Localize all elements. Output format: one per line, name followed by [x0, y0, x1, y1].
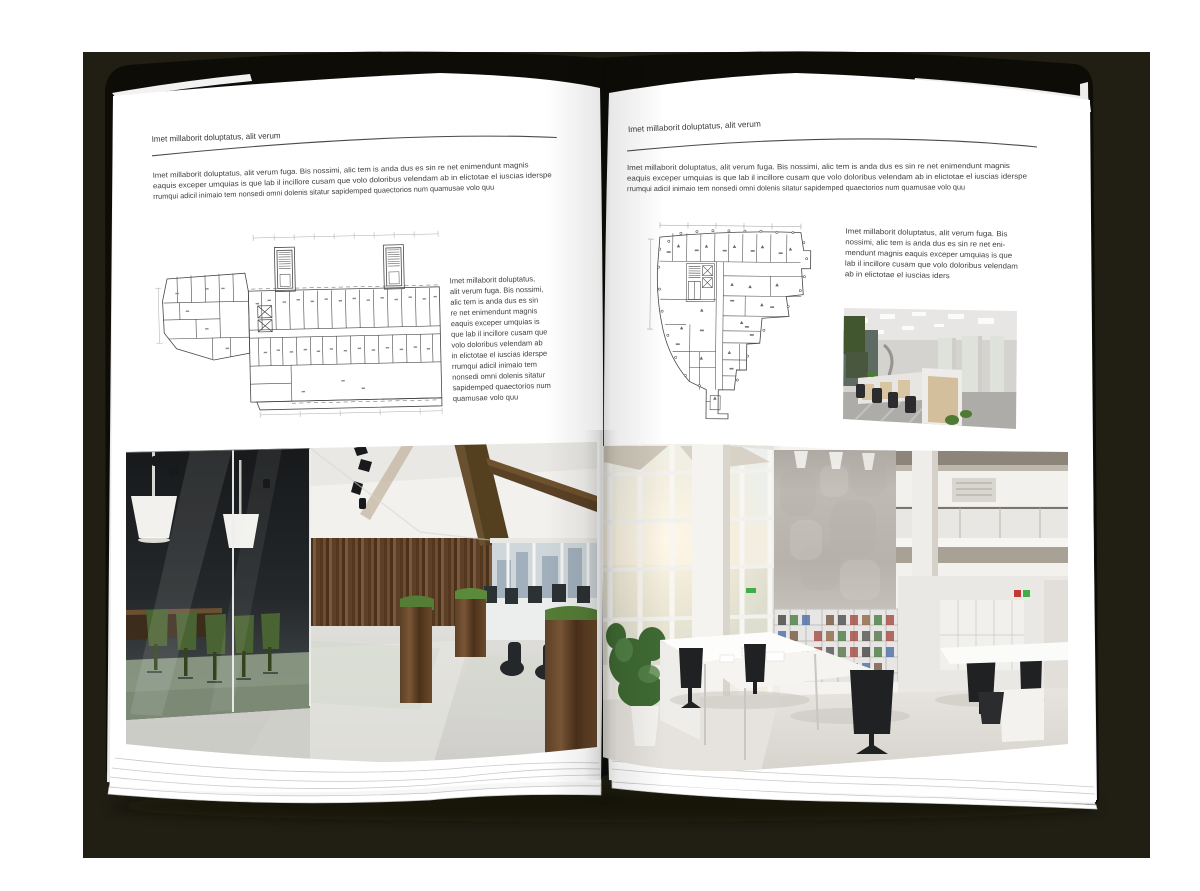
svg-text:ab in elictotae el iuscias ide: ab in elictotae el iuscias iders [845, 269, 950, 280]
svg-text:rrumqui adicil inimaio tem non: rrumqui adicil inimaio tem nonsedi omni … [627, 182, 965, 193]
svg-text:quamusae volo quu: quamusae volo quu [453, 392, 519, 403]
